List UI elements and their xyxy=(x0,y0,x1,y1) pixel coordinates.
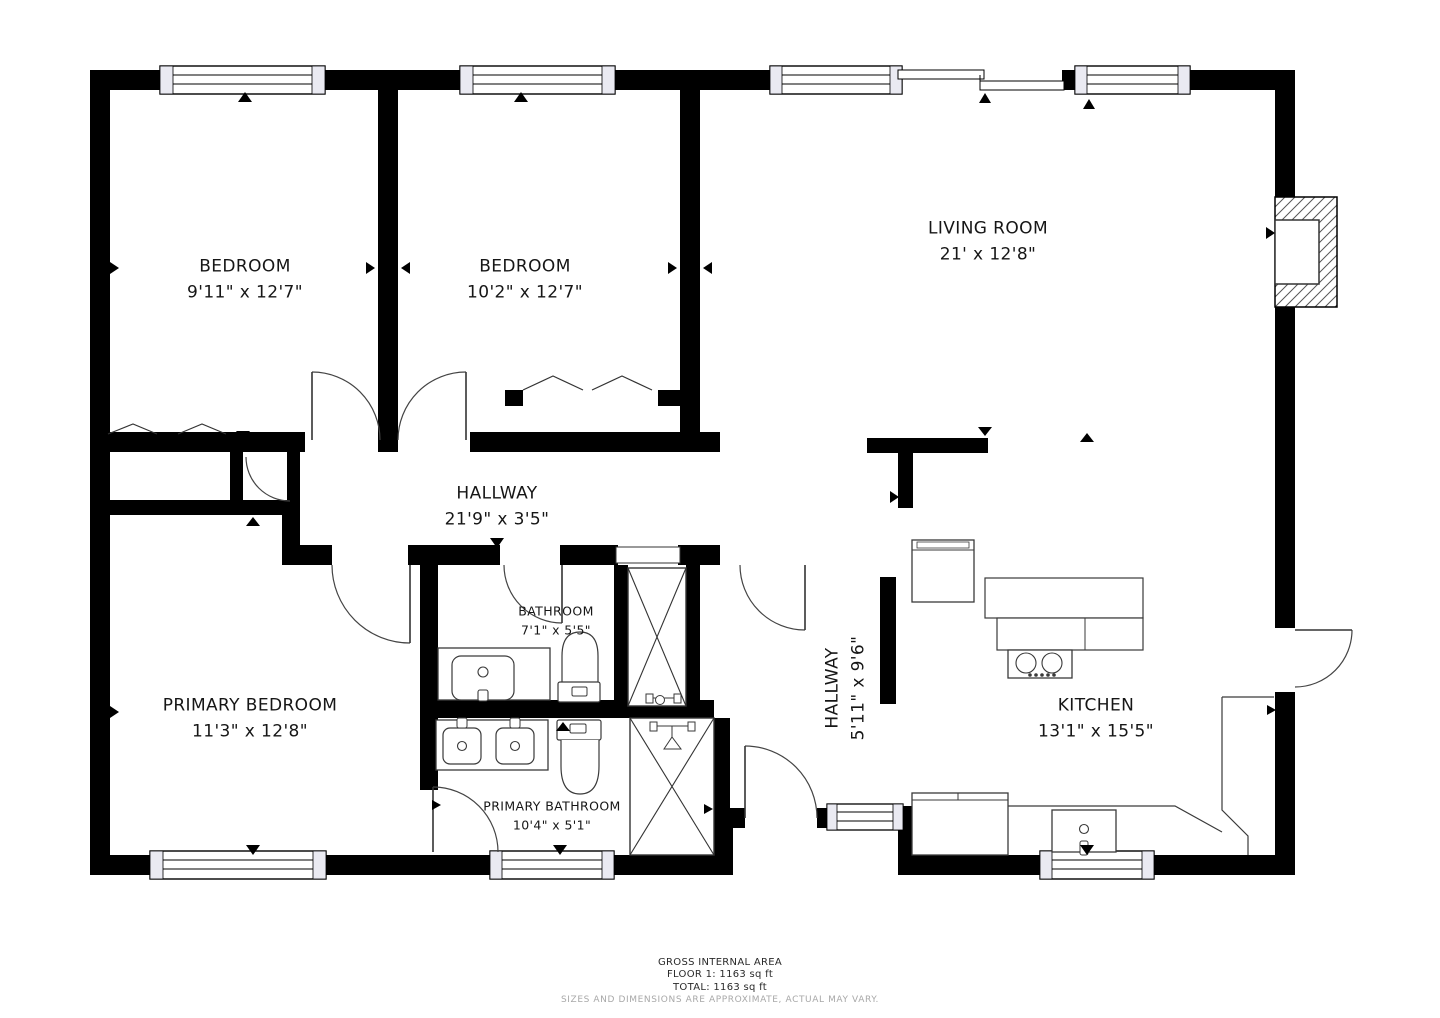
marker-divider1-r xyxy=(401,262,410,274)
room-label-bathroom: BATHROOM 7'1" x 5'5" xyxy=(518,602,594,640)
floorplan-page: BEDROOM 9'11" x 12'7" BEDROOM 10'2" x 12… xyxy=(0,0,1440,1018)
window-kitchen xyxy=(1040,851,1154,879)
marker-pbath-door xyxy=(432,800,441,810)
wall-bed2-hall xyxy=(470,432,720,452)
kitchen-peninsula xyxy=(985,578,1143,650)
room-dims: 10'4" x 5'1" xyxy=(483,816,620,835)
wall-closet-right xyxy=(686,565,700,708)
bathroom-toilet xyxy=(558,632,600,702)
room-dims: 7'1" x 5'5" xyxy=(518,621,594,640)
window-living-right xyxy=(1075,66,1190,94)
marker-primarybed xyxy=(110,706,119,718)
window-entry-recess xyxy=(827,804,903,830)
marker-divider2-r xyxy=(703,262,712,274)
bifold-bed2-a xyxy=(523,376,583,390)
room-label-hallway: HALLWAY 21'9" x 3'5" xyxy=(445,481,550,534)
marker-leftwall xyxy=(110,262,119,274)
room-dims: 11'3" x 12'8" xyxy=(163,719,338,745)
wall-bath-left xyxy=(420,565,438,790)
room-dims: 10'2" x 12'7" xyxy=(467,280,583,306)
marker-kitchen-door xyxy=(1267,705,1276,715)
wall-left xyxy=(90,70,110,875)
fireplace xyxy=(1275,197,1337,307)
dishwasher xyxy=(912,793,1008,855)
room-label-bedroom-2: BEDROOM 10'2" x 12'7" xyxy=(467,254,583,307)
firebox xyxy=(1275,220,1319,284)
room-name: BEDROOM xyxy=(187,254,303,280)
bifold-bed2-b xyxy=(592,376,652,390)
wall-right-c xyxy=(1275,692,1295,875)
door-arc-bedroom2 xyxy=(398,372,466,440)
room-dims: 9'11" x 12'7" xyxy=(187,280,303,306)
hall-shower-stall xyxy=(628,568,686,706)
footer-disclaimer: SIZES AND DIMENSIONS ARE APPROXIMATE, AC… xyxy=(561,994,879,1006)
wall-hall2-right xyxy=(880,577,896,704)
primarybath-toilet xyxy=(557,720,601,794)
closet-stub-left xyxy=(505,390,523,406)
marker-slider xyxy=(979,93,991,103)
door-arc-primarybed xyxy=(332,565,410,643)
room-name: HALLWAY xyxy=(445,481,550,507)
door-arc-hallway2 xyxy=(740,565,805,630)
room-label-living-room: LIVING ROOM 21' x 12'8" xyxy=(928,216,1048,269)
room-label-primary-bedroom: PRIMARY BEDROOM 11'3" x 12'8" xyxy=(163,693,338,746)
primarybath-vanity xyxy=(436,718,548,770)
room-dims: 21'9" x 3'5" xyxy=(445,507,550,533)
door-arc-kitchen-exterior xyxy=(1295,630,1352,687)
wall-bath-closet xyxy=(614,565,628,708)
marker-kitchen-top xyxy=(1080,433,1094,442)
marker-wall-end xyxy=(978,427,992,436)
hall-closet-wall-right xyxy=(287,452,300,502)
room-label-bedroom-1: BEDROOM 9'11" x 12'7" xyxy=(187,254,303,307)
floorplan-canvas xyxy=(0,0,1440,1018)
window-primarybath xyxy=(490,851,614,879)
window-living-left xyxy=(770,66,902,94)
wall-right-a xyxy=(1275,70,1295,197)
wall-hall-bottom-a xyxy=(300,545,332,565)
closet-stub-right xyxy=(658,390,700,406)
room-name: HALLWAY xyxy=(820,636,846,741)
footer-floor-area: FLOOR 1: 1163 sq ft xyxy=(561,969,879,981)
sliding-door xyxy=(898,70,1064,90)
room-name: BEDROOM xyxy=(467,254,583,280)
marker-closet-west xyxy=(246,517,260,526)
bathroom-vanity xyxy=(438,648,550,701)
room-dims: 5'11" x 9'6" xyxy=(846,636,872,741)
wall-bed1-bed2 xyxy=(378,90,398,432)
footer-title: GROSS INTERNAL AREA xyxy=(561,957,879,969)
footer: GROSS INTERNAL AREA FLOOR 1: 1163 sq ft … xyxy=(561,957,879,1007)
refrigerator xyxy=(912,540,974,602)
wall-living-kitchen xyxy=(867,438,988,453)
footer-total-area: TOTAL: 1163 sq ft xyxy=(561,982,879,994)
door-leaves xyxy=(312,372,1352,852)
wall-recess-corner xyxy=(716,808,733,875)
marker-hall2 xyxy=(890,491,899,503)
wall-hall-bottom-b xyxy=(408,545,500,565)
room-name: PRIMARY BATHROOM xyxy=(483,797,620,816)
hall-closet-wall-left xyxy=(230,452,243,502)
doors xyxy=(246,372,1352,852)
room-label-hallway-2: HALLWAY 5'11" x 9'6" xyxy=(820,636,873,741)
cased-opening xyxy=(616,547,680,563)
window-primarybed xyxy=(150,851,326,879)
wall-hall2-top xyxy=(898,448,913,508)
wall-recess-b xyxy=(817,808,827,828)
wall-right-b xyxy=(1275,307,1295,628)
room-name: BATHROOM xyxy=(518,602,594,621)
window-bedroom2 xyxy=(460,66,615,94)
wall-primarybed-top xyxy=(90,500,282,515)
door-arcs xyxy=(246,372,1352,852)
marker-divider1-l xyxy=(366,262,375,274)
room-dims: 21' x 12'8" xyxy=(928,242,1048,268)
wall-stub-doors xyxy=(378,432,398,452)
door-arc-bedroom1 xyxy=(312,372,380,440)
room-name: PRIMARY BEDROOM xyxy=(163,693,338,719)
room-name: KITCHEN xyxy=(1038,693,1154,719)
wall-bed2-living xyxy=(680,90,700,432)
room-label-kitchen: KITCHEN 13'1" x 15'5" xyxy=(1038,693,1154,746)
room-label-primary-bathroom: PRIMARY BATHROOM 10'4" x 5'1" xyxy=(483,797,620,835)
marker-divider2-l xyxy=(668,262,677,274)
wall-bed1-hall xyxy=(90,432,305,452)
stove xyxy=(1008,650,1072,678)
marker-window4 xyxy=(1083,99,1095,109)
door-arc-hall-closet xyxy=(246,457,290,501)
wall-hall-bottom-c xyxy=(560,545,618,565)
door-arc-entry xyxy=(745,746,817,818)
room-name: LIVING ROOM xyxy=(928,216,1048,242)
wall-hall-bottom-d xyxy=(678,545,720,565)
wall-primarybed-corner xyxy=(282,500,300,565)
window-bedroom1 xyxy=(160,66,325,94)
room-dims: 13'1" x 15'5" xyxy=(1038,719,1154,745)
marker-rightwall xyxy=(1266,227,1275,239)
